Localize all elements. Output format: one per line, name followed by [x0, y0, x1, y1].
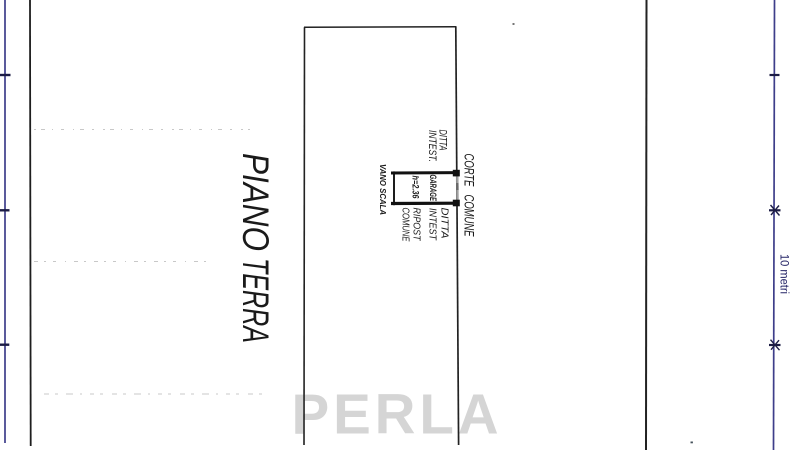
svg-text:INTEST: INTEST	[427, 208, 439, 241]
svg-text:INTEST.: INTEST.	[426, 130, 438, 162]
svg-text:CORTE: CORTE	[462, 154, 478, 187]
svg-text:h=2.36: h=2.36	[410, 176, 421, 200]
svg-text:COMUNE: COMUNE	[462, 195, 478, 237]
svg-text:COMUNE: COMUNE	[400, 208, 412, 243]
svg-text:DITTA: DITTA	[439, 208, 451, 239]
svg-text:GARAGE: GARAGE	[427, 175, 438, 202]
svg-text:VANO SCALA: VANO SCALA	[378, 164, 388, 215]
svg-text:PIANO: PIANO	[235, 153, 276, 251]
svg-text:PERLA: PERLA	[292, 383, 503, 446]
svg-text:10 metri: 10 metri	[778, 254, 790, 294]
svg-text:TERRA: TERRA	[235, 258, 276, 343]
